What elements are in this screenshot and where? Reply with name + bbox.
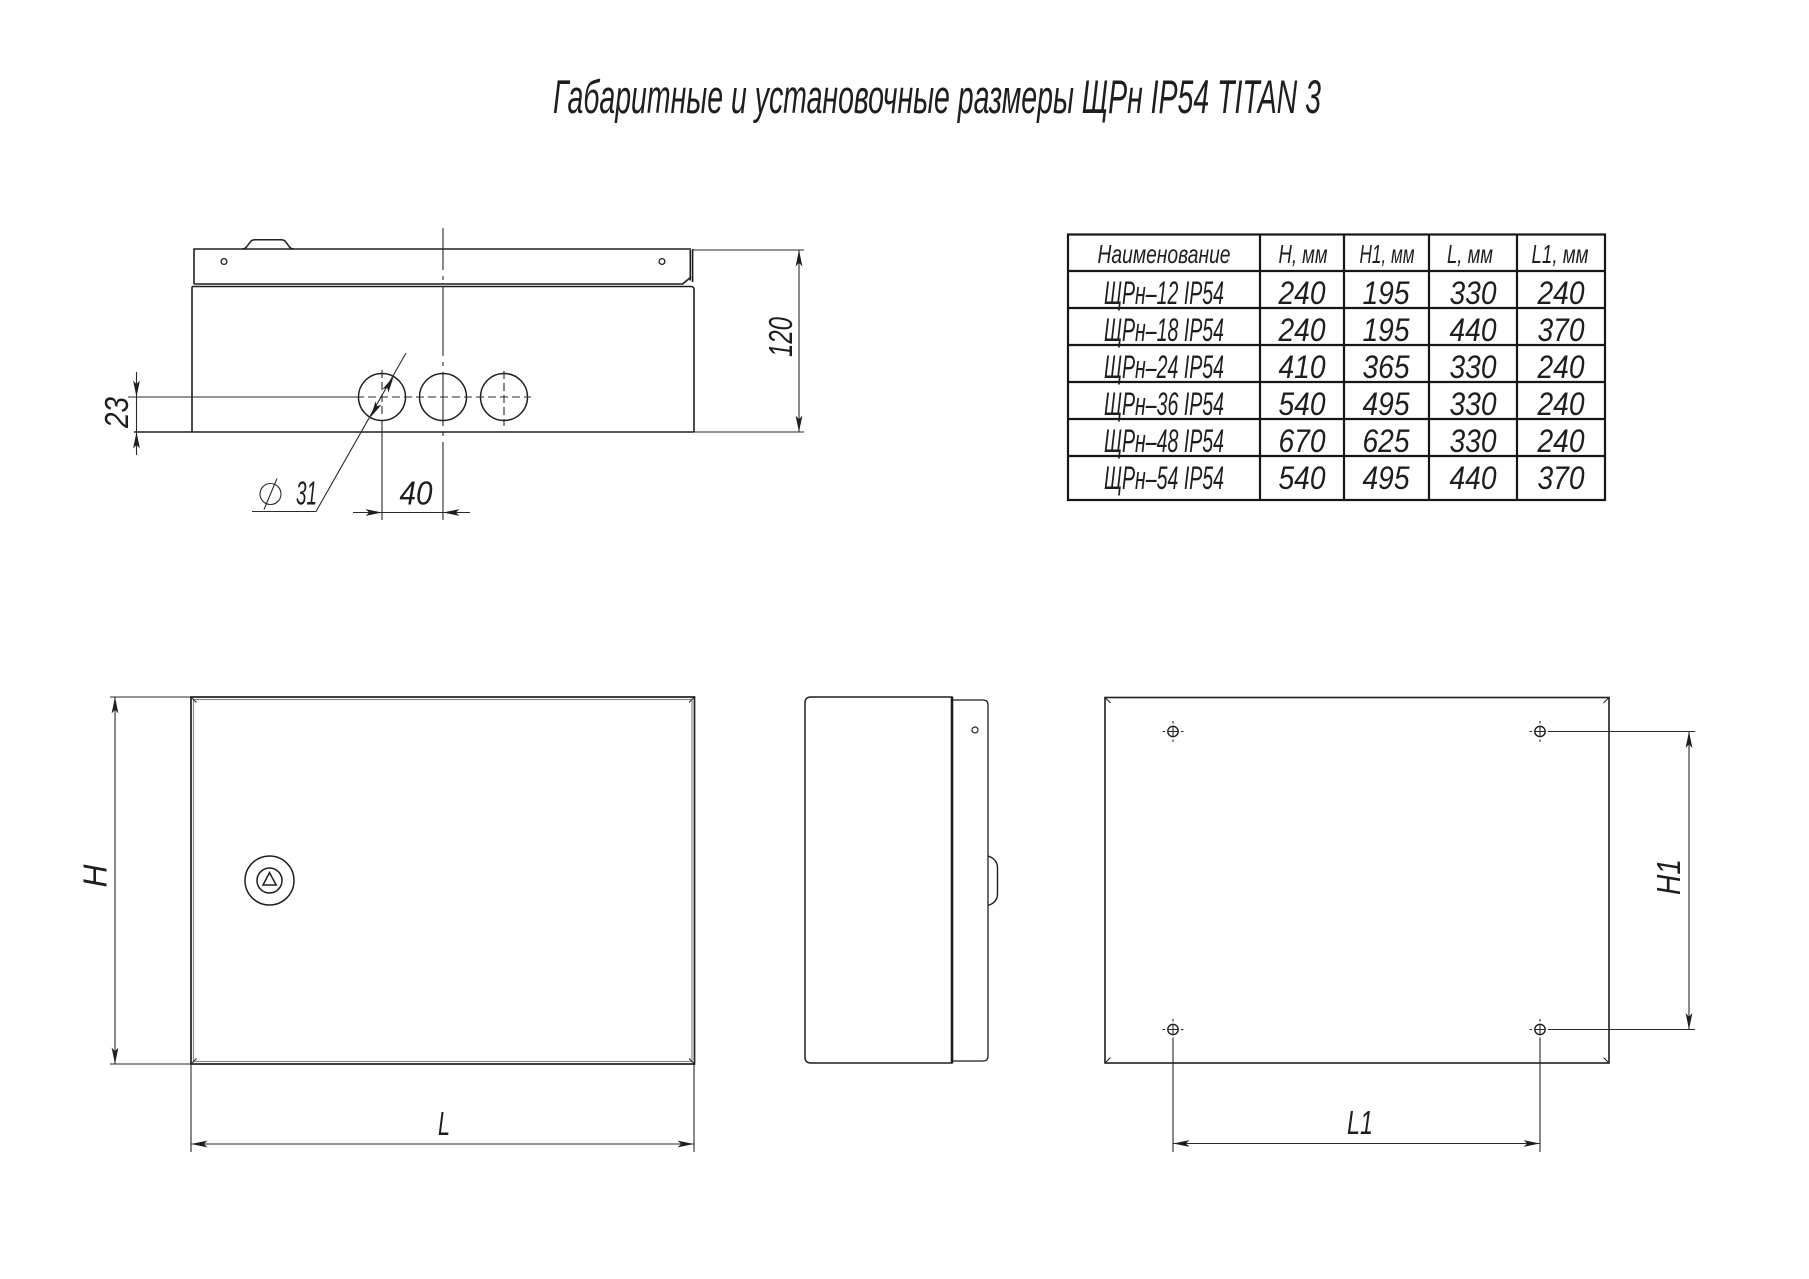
svg-text:H: H xyxy=(77,864,114,887)
svg-text:40: 40 xyxy=(400,475,434,512)
svg-text:L1, мм: L1, мм xyxy=(1532,239,1589,269)
svg-text:L: L xyxy=(438,1105,450,1142)
svg-text:330: 330 xyxy=(1450,423,1497,459)
svg-text:23: 23 xyxy=(98,396,135,428)
svg-text:365: 365 xyxy=(1363,349,1410,385)
svg-text:240: 240 xyxy=(1278,275,1326,311)
svg-text:330: 330 xyxy=(1450,349,1497,385)
svg-text:540: 540 xyxy=(1279,460,1326,496)
svg-text:Габаритные и установочные разм: Габаритные и установочные размеры ЩРн IP… xyxy=(553,70,1321,123)
svg-text:H, мм: H, мм xyxy=(1279,239,1328,269)
svg-text:240: 240 xyxy=(1537,386,1585,422)
svg-text:495: 495 xyxy=(1363,386,1410,422)
svg-text:370: 370 xyxy=(1538,460,1585,496)
svg-text:670: 670 xyxy=(1279,423,1326,459)
svg-text:ЩРн–24 IP54: ЩРн–24 IP54 xyxy=(1104,349,1224,385)
svg-text:240: 240 xyxy=(1537,349,1585,385)
svg-text:L, мм: L, мм xyxy=(1447,239,1493,269)
svg-text:625: 625 xyxy=(1363,423,1410,459)
svg-text:ЩРн–36 IP54: ЩРн–36 IP54 xyxy=(1104,386,1224,422)
svg-text:240: 240 xyxy=(1278,312,1326,348)
svg-text:540: 540 xyxy=(1279,386,1326,422)
svg-text:ЩРн–18 IP54: ЩРн–18 IP54 xyxy=(1104,312,1224,348)
svg-text:440: 440 xyxy=(1450,312,1497,348)
svg-text:Наименование: Наименование xyxy=(1098,239,1231,269)
svg-text:120: 120 xyxy=(762,317,799,357)
svg-text:330: 330 xyxy=(1450,386,1497,422)
svg-text:370: 370 xyxy=(1538,312,1585,348)
svg-text:ЩРн–54 IP54: ЩРн–54 IP54 xyxy=(1104,460,1224,496)
svg-text:ЩРн–12 IP54: ЩРн–12 IP54 xyxy=(1104,275,1224,311)
svg-text:31: 31 xyxy=(296,475,317,512)
svg-text:H1, мм: H1, мм xyxy=(1360,239,1415,269)
svg-text:330: 330 xyxy=(1450,275,1497,311)
svg-text:L1: L1 xyxy=(1347,1104,1373,1141)
svg-text:440: 440 xyxy=(1450,460,1497,496)
svg-text:ЩРн–48 IP54: ЩРн–48 IP54 xyxy=(1104,423,1224,459)
svg-text:195: 195 xyxy=(1363,312,1410,348)
svg-text:410: 410 xyxy=(1279,349,1326,385)
svg-text:495: 495 xyxy=(1363,460,1410,496)
svg-text:195: 195 xyxy=(1363,275,1410,311)
svg-text:H1: H1 xyxy=(1650,859,1687,895)
svg-text:240: 240 xyxy=(1537,275,1585,311)
svg-text:240: 240 xyxy=(1537,423,1585,459)
